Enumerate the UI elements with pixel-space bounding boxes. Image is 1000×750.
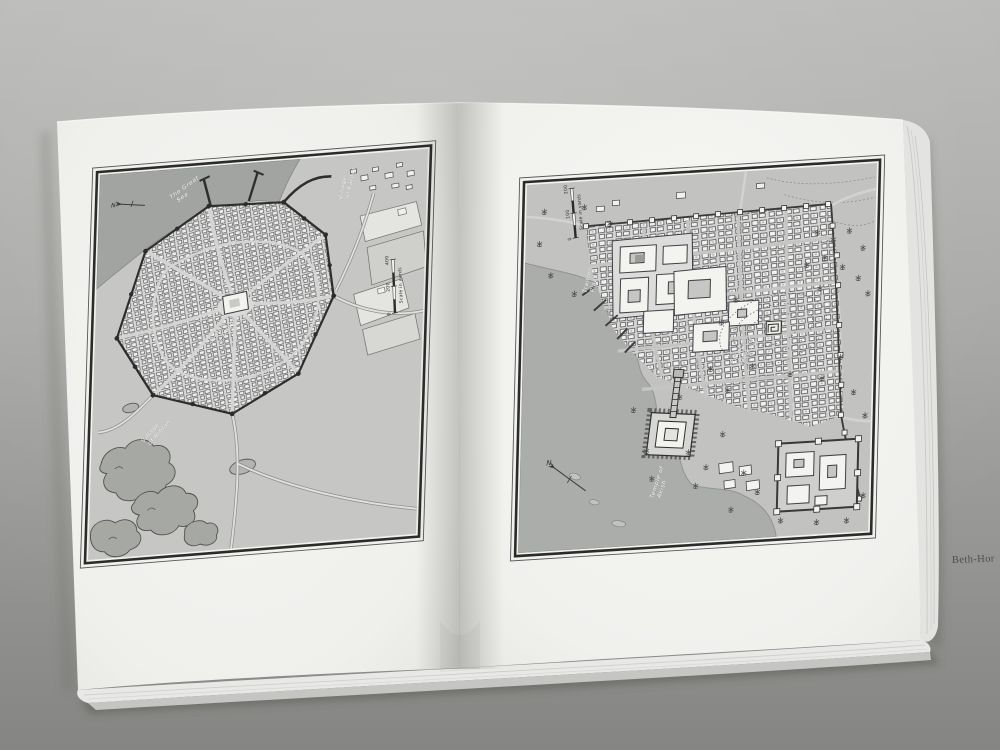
right-map-north-label: N bbox=[546, 459, 552, 467]
right-scale-mid: 100 bbox=[565, 209, 572, 220]
plate-caption: Beth-Hor bbox=[952, 554, 995, 566]
right-scale-max: 200 bbox=[563, 184, 570, 195]
right-map-se-compound bbox=[774, 436, 862, 515]
left-map-north-label: N bbox=[111, 202, 116, 209]
right-map-plate: Traitors Plaza Palace of Jared XVI Templ… bbox=[510, 155, 884, 561]
right-map-keep bbox=[766, 321, 781, 335]
photo-of-open-map-book: The Great Sea Village of Karpas Temple o… bbox=[0, 0, 1000, 750]
left-scale-max: 400 bbox=[384, 255, 390, 265]
left-scale-mid: 200 bbox=[385, 282, 391, 292]
book-photo-canvas: The Great Sea Village of Karpas Temple o… bbox=[0, 0, 1000, 750]
left-map-plate: The Great Sea Village of Karpas Temple o… bbox=[80, 141, 435, 568]
